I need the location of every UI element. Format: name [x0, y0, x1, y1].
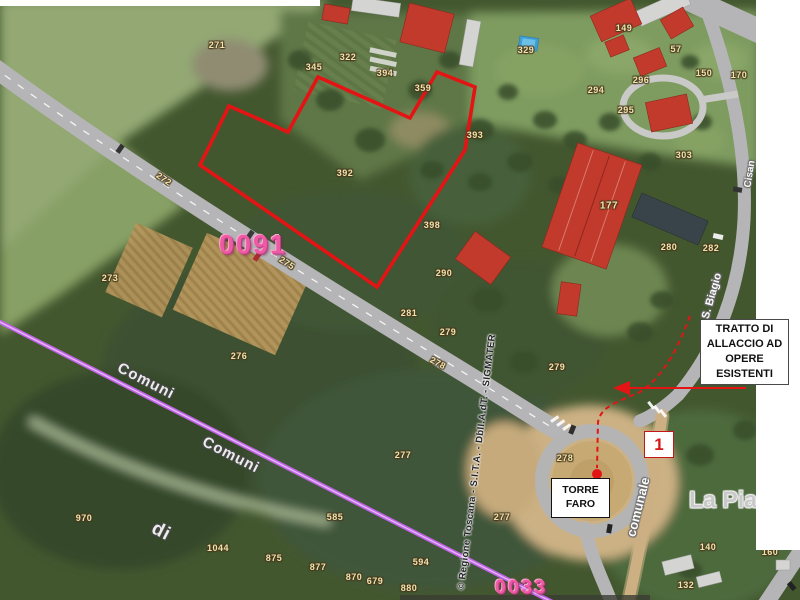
- torre-faro-callout: TORRE FARO: [551, 478, 610, 518]
- terrain-fields: [0, 0, 800, 600]
- satellite-imagery: [0, 0, 800, 600]
- cadastral-satellite-map: 2713453223943593291495729429615017029530…: [0, 0, 800, 600]
- tratto-allaccio-callout: TRATTO DI ALLACCIO AD OPERE ESISTENTI: [700, 319, 789, 385]
- marker-1-badge: 1: [644, 431, 674, 458]
